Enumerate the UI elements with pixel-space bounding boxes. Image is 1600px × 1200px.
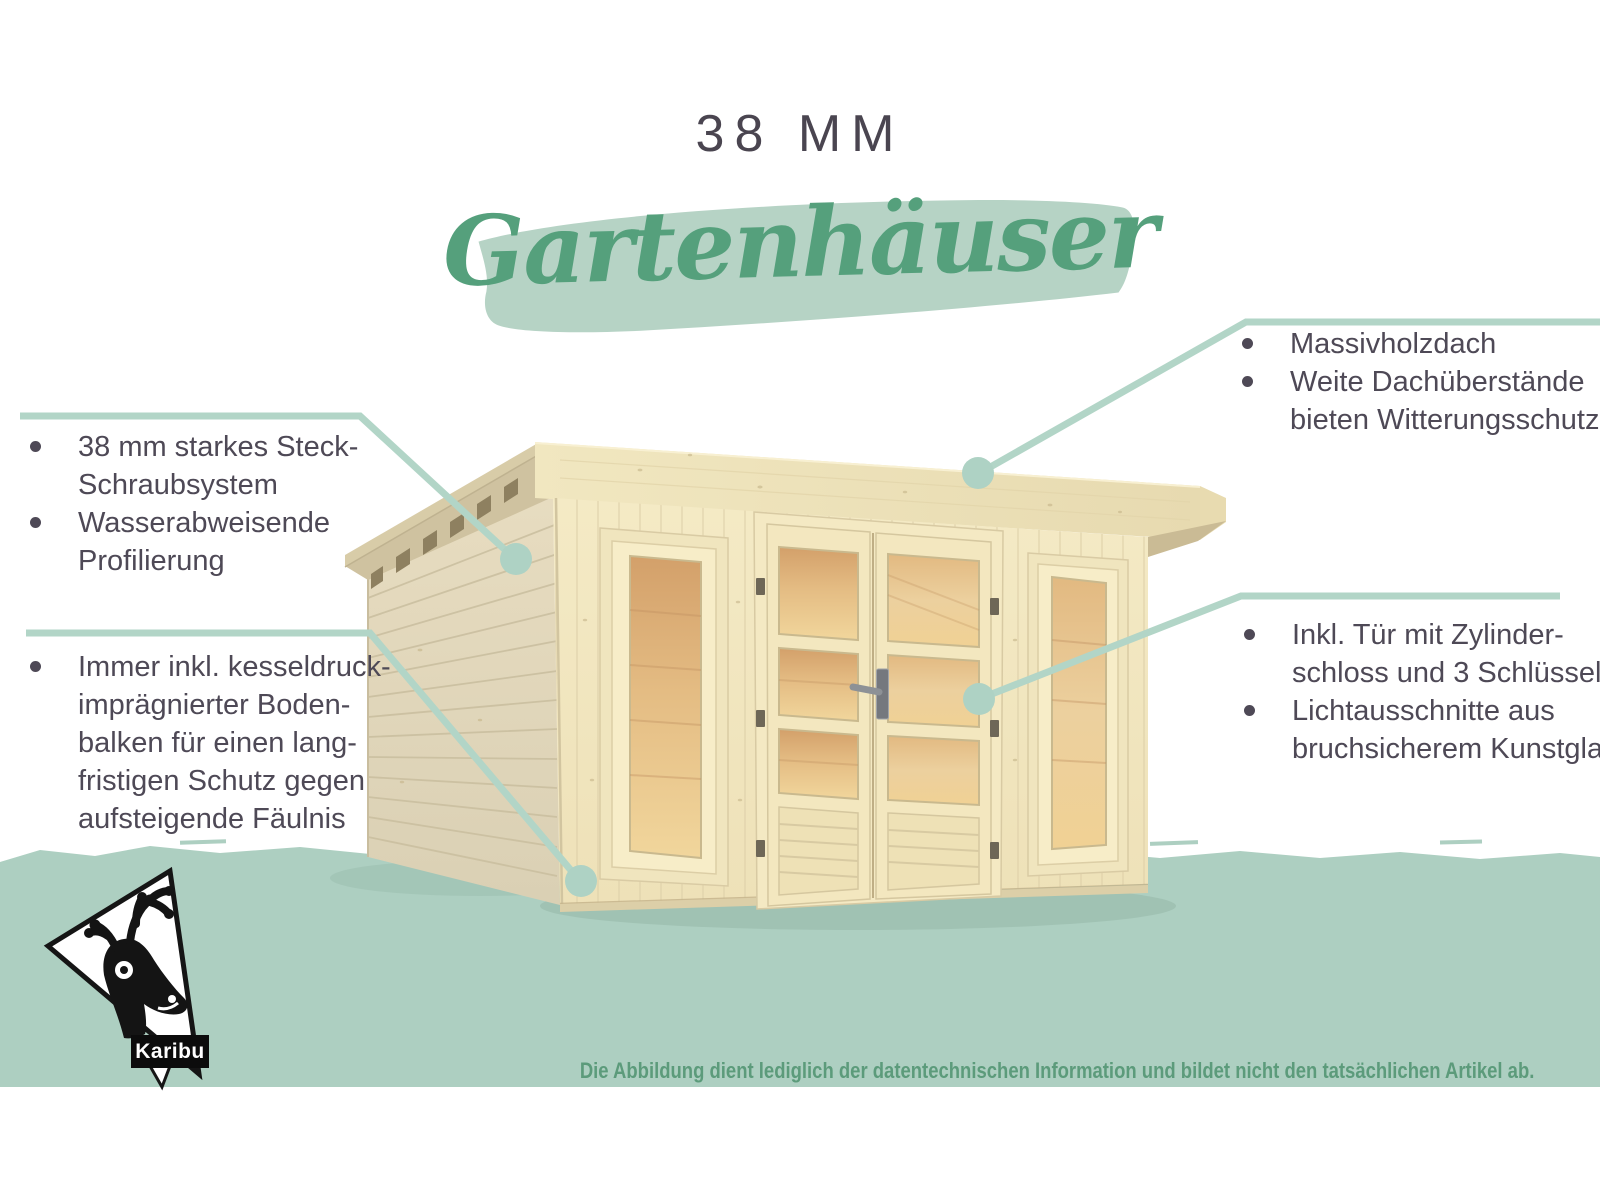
feature-block-floor-beams: Immer inkl. kesseldruck- imprägnierter B… [30,648,391,838]
infographic-page: 38 MM Gartenhäuser 38 mm starkes Steck- … [0,0,1600,1200]
page-title: Gartenhäuser [442,177,1158,309]
feature-item: 38 mm starkes Steck- Schraubsystem [30,428,358,504]
illustration-canvas [0,0,1600,1200]
bullet-icon [30,428,78,452]
feature-item: Wasserabweisende Profilierung [30,504,358,580]
left-window [600,528,728,886]
feature-item: Immer inkl. kesseldruck- imprägnierter B… [30,648,391,838]
bullet-icon [1244,692,1292,716]
feature-block-roof: Massivholzdach Weite Dachüberstände biet… [1242,325,1599,439]
bullet-icon [1244,616,1292,640]
karibu-logo-label: Karibu [131,1035,209,1068]
bullet-icon [1242,363,1290,387]
callout-dot-wall [500,543,532,575]
bullet-icon [30,504,78,528]
feature-item: Massivholzdach [1242,325,1599,363]
feature-item: Inkl. Tür mit Zylinder- schloss und 3 Sc… [1244,616,1600,692]
feature-item: Lichtausschnitte aus bruchsicherem Kunst… [1244,692,1600,768]
double-door [754,512,1003,909]
garden-house-illustration [345,442,1226,912]
feature-block-door: Inkl. Tür mit Zylinder- schloss und 3 Sc… [1244,616,1600,768]
feature-block-construction: 38 mm starkes Steck- Schraubsystem Wasse… [30,428,358,580]
bullet-icon [30,648,78,672]
right-window [1028,553,1128,876]
category-heading: 38 MM [0,104,1600,164]
page-title-wrap: Gartenhäuser [0,186,1600,299]
disclaimer-text: Die Abbildung dient lediglich der datent… [579,1058,1534,1084]
callout-dot-roof [962,457,994,489]
bullet-icon [1242,325,1290,349]
callout-dot-door [963,683,995,715]
feature-item: Weite Dachüberstände bieten Witterungssc… [1242,363,1599,439]
callout-dot-base [565,865,597,897]
